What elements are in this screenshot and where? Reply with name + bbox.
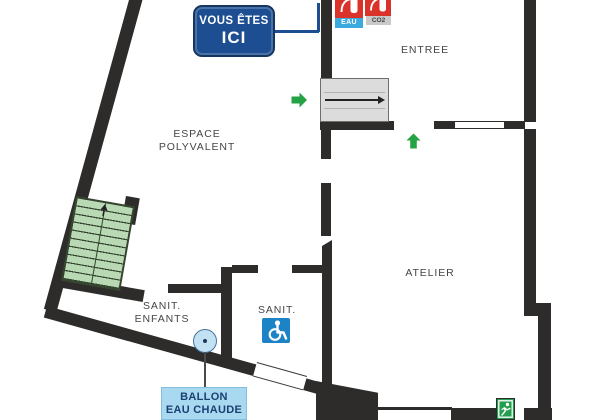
you-are-here-line1: VOUS ÊTES	[197, 15, 271, 27]
room-label-espace-polyvalent: ESPACE POLYVALENT	[127, 128, 267, 154]
hot-water-tank-leader	[204, 352, 206, 387]
room-label-atelier: ATELIER	[375, 267, 485, 280]
extinguisher-type-eau: EAU	[341, 19, 357, 26]
entrance-direction-arrow-icon	[378, 96, 385, 104]
wall-sanit-enfants-top	[168, 284, 222, 293]
wall-sanit-top-a	[232, 265, 258, 273]
entrance-direction-line	[325, 99, 379, 101]
wall-right-foot	[524, 408, 552, 420]
sign-leader-horizontal	[271, 30, 319, 33]
wall-right-lower	[538, 314, 551, 414]
room-label-sanit-enfants: SANIT. ENFANTS	[102, 300, 222, 326]
you-are-here-line2: ICI	[197, 28, 271, 48]
stairs-up-arrow-icon	[98, 203, 110, 218]
hot-water-tank-callout: BALLON EAU CHAUDE	[161, 387, 247, 420]
wall-right-mid	[524, 129, 536, 305]
wall-sanit-left	[221, 267, 232, 358]
sign-leader-vertical	[317, 3, 320, 32]
wall-bottom-junction	[316, 381, 378, 420]
you-are-here-sign: VOUS ÊTES ICI	[195, 7, 273, 55]
wall-center-top	[321, 0, 332, 79]
wall-center-c	[322, 240, 332, 386]
entrance-step-line	[324, 92, 385, 93]
wall-right-top	[524, 0, 536, 122]
emergency-exit-icon	[496, 398, 515, 420]
extinguisher-badge-eau: EAU	[335, 18, 363, 28]
wall-center-b	[321, 183, 331, 236]
accessible-wc-icon	[262, 318, 290, 343]
wall-bottom-right	[451, 408, 496, 420]
evacuation-floor-plan: ENTREE ESPACE POLYVALENT ATELIER SANIT. …	[0, 0, 600, 420]
room-label-entree: ENTREE	[370, 44, 480, 57]
evacuation-arrow-right-icon	[291, 92, 308, 108]
extinguisher-type-co2: CO2	[372, 17, 385, 24]
wall-under-steps	[320, 121, 394, 130]
wall-sanit-top-b	[292, 265, 322, 273]
room-label-sanit: SANIT.	[237, 304, 317, 317]
extinguisher-badge-co2: CO2	[366, 16, 391, 25]
evacuation-arrow-up-icon	[406, 132, 421, 150]
window-entree	[455, 121, 504, 129]
door-opening-bottom	[253, 362, 307, 390]
wall-center-a	[321, 130, 331, 159]
opening-line-bottom	[377, 407, 452, 410]
hot-water-tank-label-line2: EAU CHAUDE	[162, 404, 246, 417]
wall-window-left	[434, 121, 455, 129]
hot-water-tank-dot	[203, 339, 207, 343]
hot-water-tank-marker	[193, 329, 217, 353]
entrance-step-line	[324, 108, 385, 109]
fire-extinguisher-co2-icon	[365, 0, 391, 16]
entrance-steps	[320, 78, 389, 122]
hot-water-tank-label-line1: BALLON	[162, 391, 246, 404]
wall-window-right	[504, 121, 525, 129]
fire-extinguisher-eau-icon	[335, 0, 363, 18]
